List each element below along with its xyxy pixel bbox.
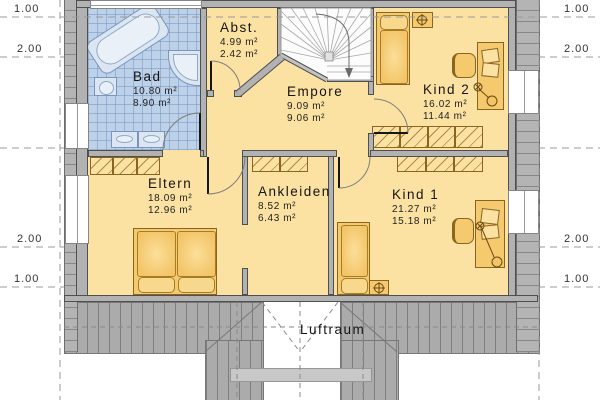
room-area-net: 12.96 m²: [148, 205, 192, 218]
double-washbasin-icon: [111, 131, 165, 148]
room-area-gross: 4.99 m²: [220, 37, 258, 50]
room-name: Empore: [287, 84, 343, 101]
room-area-net: 8.90 m²: [133, 98, 177, 111]
window-kind2-right: [508, 70, 539, 114]
wall-stair-bottom: [327, 76, 374, 82]
room-name: Kind 1: [392, 187, 439, 204]
window-eltern-left: [65, 175, 89, 244]
room-area-gross: 10.80 m²: [133, 86, 177, 99]
wc-icon: [94, 77, 117, 96]
room-area-gross: 16.02 m²: [423, 99, 470, 112]
dim-right-1: 1.00: [564, 3, 589, 15]
desk-kind1: [475, 200, 505, 268]
room-area-net: 6.43 m²: [258, 213, 331, 226]
dim-left-4: 1.00: [14, 273, 39, 285]
room-area-gross: 8.52 m²: [258, 201, 331, 214]
dim-right-2: 2.00: [564, 43, 589, 55]
wall-abst-bottom-stub-right: [234, 90, 242, 97]
wall-eltern-ankleiden-lower: [242, 268, 248, 295]
room-label-kind2: Kind 2 16.02 m² 11.44 m²: [423, 82, 470, 124]
window-kind1-right: [508, 190, 539, 234]
dim-left-2: 2.00: [17, 43, 42, 55]
wardrobe-kind2: [372, 126, 483, 148]
desk-chair-kind2: [452, 53, 476, 78]
room-area-gross: 21.27 m²: [392, 204, 439, 217]
floor-plan: Bad 10.80 m² 8.90 m² Abst. 4.99 m² 2.42 …: [0, 0, 600, 400]
wardrobe-eltern: [90, 157, 160, 175]
double-bed-icon: [133, 228, 217, 295]
room-area-net: 9.06 m²: [287, 113, 343, 126]
room-label-ankleiden: Ankleiden 8.52 m² 6.43 m²: [258, 184, 331, 226]
wall-eltern-ankleiden-upper: [242, 150, 248, 225]
room-name: Bad: [133, 69, 177, 86]
wall-abst-bottom-stub-left: [207, 90, 214, 97]
wardrobe-kind1: [397, 155, 483, 172]
nightstand-kind2: [412, 12, 433, 28]
wall-mid-seg1: [88, 150, 163, 157]
room-name: Eltern: [148, 176, 192, 193]
dim-right-3: 2.00: [564, 233, 589, 245]
exterior-wall-left: [76, 0, 88, 302]
window-bad-left: [65, 103, 89, 149]
room-area-net: 2.42 m²: [220, 49, 258, 62]
dim-right-4: 1.00: [564, 273, 589, 285]
dim-left-3: 2.00: [17, 233, 42, 245]
single-bed-kind2: [376, 12, 410, 85]
desk-kind2: [477, 42, 504, 110]
wall-mid-seg4: [370, 150, 508, 157]
wall-stair-left: [277, 8, 283, 58]
wardrobe-ankleiden: [252, 155, 308, 172]
room-label-kind1: Kind 1 21.27 m² 15.18 m²: [392, 187, 439, 229]
nightstand-kind1: [369, 280, 389, 295]
wall-mid-seg2: [200, 150, 204, 157]
void-lower-wall: [230, 368, 372, 382]
room-area-gross: 18.09 m²: [148, 193, 192, 206]
wall-mid-seg3: [242, 150, 337, 157]
room-label-abst: Abst. 4.99 m² 2.42 m²: [220, 20, 258, 62]
void-label-luftraum: Luftraum: [300, 322, 365, 337]
single-bed-kind1: [337, 222, 370, 295]
exterior-wall-right: [508, 0, 516, 302]
room-label-eltern: Eltern 18.09 m² 12.96 m²: [148, 176, 192, 218]
room-name: Kind 2: [423, 82, 470, 99]
room-name: Ankleiden: [258, 184, 331, 201]
wall-bad-abst: [200, 8, 207, 157]
room-area-gross: 9.09 m²: [287, 101, 343, 114]
window-bad-top: [90, 0, 202, 9]
exterior-wall-bottom: [64, 295, 538, 302]
room-area-net: 15.18 m²: [392, 216, 439, 229]
room-label-bad: Bad 10.80 m² 8.90 m²: [133, 69, 177, 111]
room-name: Abst.: [220, 20, 258, 37]
dim-left-1: 1.00: [14, 3, 39, 15]
room-label-empore: Empore 9.09 m² 9.06 m²: [287, 84, 343, 126]
desk-chair-kind1: [452, 218, 474, 244]
room-area-net: 11.44 m²: [423, 111, 470, 124]
